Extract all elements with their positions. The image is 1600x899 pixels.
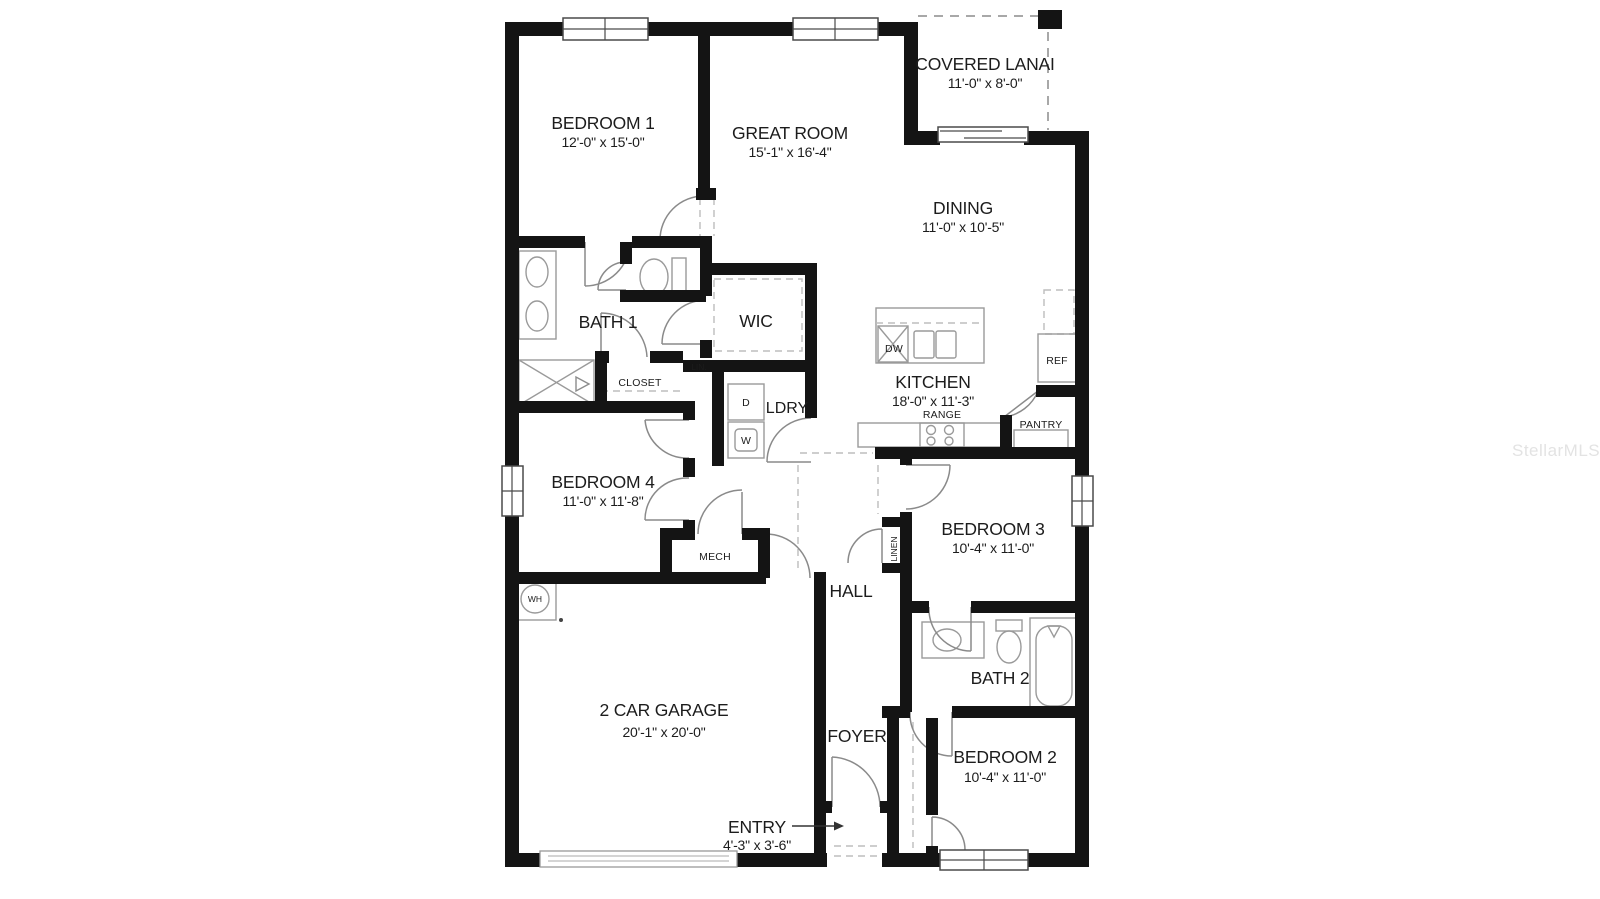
shower-valve-icon xyxy=(576,377,589,391)
floor-plan-image: BEDROOM 1 12'-0" x 15'-0" GREAT ROOM 15'… xyxy=(0,0,1600,899)
toilet2-bowl xyxy=(997,631,1021,663)
room-label-ldry: LDRY xyxy=(766,400,809,417)
wic-door xyxy=(662,300,706,344)
bath2-vanity xyxy=(922,622,984,658)
window-bedroom1 xyxy=(563,18,648,40)
toilet1-bowl xyxy=(640,259,668,295)
room-dims-great-room: 15'-1" x 16'-4" xyxy=(748,144,831,160)
linen-door xyxy=(848,529,882,563)
room-label-great-room: GREAT ROOM xyxy=(732,123,848,143)
room-label-bedroom2: BEDROOM 2 xyxy=(953,747,1056,767)
lanai-corner-post xyxy=(1038,10,1062,29)
toilet2-tank xyxy=(996,620,1022,631)
room-dims-entry: 4'-3" x 3'-6" xyxy=(723,837,791,853)
laundry-door xyxy=(767,418,811,462)
pantry-shelf xyxy=(1014,430,1068,448)
room-label-bedroom3: BEDROOM 3 xyxy=(941,519,1044,539)
room-label-pantry: PANTRY xyxy=(1020,419,1063,431)
room-label-lin: LIN. xyxy=(691,362,707,372)
bedroom1-door xyxy=(660,196,704,240)
window-great-room xyxy=(793,18,878,40)
window-bedroom4 xyxy=(502,466,523,516)
room-label-bedroom4: BEDROOM 4 xyxy=(551,472,655,492)
hall-ceiling-break xyxy=(798,453,878,570)
room-label-kitchen: KITCHEN xyxy=(895,372,970,392)
burner xyxy=(927,437,935,445)
burner xyxy=(945,426,954,435)
burner xyxy=(945,437,953,445)
watermark: StellarMLS xyxy=(1512,441,1600,460)
range-box xyxy=(920,423,964,447)
pantry-door xyxy=(1004,391,1038,417)
label-range: RANGE xyxy=(923,409,961,421)
room-dims-dining: 11'-0" x 10'-5" xyxy=(922,219,1004,235)
floor-plan-canvas: BEDROOM 1 12'-0" x 15'-0" GREAT ROOM 15'… xyxy=(0,0,1600,899)
burner xyxy=(927,426,936,435)
island-sink-2 xyxy=(936,331,956,358)
room-label-dining: DINING xyxy=(933,198,993,218)
bath1-vanity xyxy=(519,251,556,339)
room-label-closet: CLOSET xyxy=(618,377,662,389)
room-label-bedroom1: BEDROOM 1 xyxy=(551,113,654,133)
bath1-sink-2 xyxy=(526,301,548,331)
bedroom3-door xyxy=(906,465,950,509)
room-dims-bedroom2: 10'-4" x 11'-0" xyxy=(964,769,1046,785)
label-refrigerator: REF xyxy=(1046,355,1068,367)
bath2-fixtures xyxy=(922,618,1078,712)
room-label-entry: ENTRY xyxy=(728,817,787,837)
lanai-sliding-door xyxy=(938,127,1028,142)
label-dishwasher: DW xyxy=(885,343,903,355)
front-entry-door xyxy=(832,757,880,807)
room-dims-bedroom1: 12'-0" x 15'-0" xyxy=(561,134,644,150)
room-label-bath1: BATH 1 xyxy=(579,312,638,332)
room-dims-bedroom4: 11'-0" x 11'-8" xyxy=(562,493,643,509)
bedroom4-door-1 xyxy=(645,420,689,458)
room-dims-garage: 20'-1" x 20'-0" xyxy=(622,724,705,740)
room-label-hall: HALL xyxy=(830,581,873,601)
bedroom1-opening xyxy=(700,198,714,236)
mech-door xyxy=(698,490,742,534)
wall-end-cap xyxy=(696,188,716,200)
label-dryer: D xyxy=(742,397,750,409)
bedroom2-closet-door xyxy=(932,817,965,850)
room-label-garage: 2 CAR GARAGE xyxy=(600,700,729,720)
room-dims-bedroom3: 10'-4" x 11'-0" xyxy=(952,540,1034,556)
room-label-mech: MECH xyxy=(699,551,731,563)
room-dims-kitchen: 18'-0" x 11'-3" xyxy=(892,393,974,409)
room-label-linen: LINEN xyxy=(889,536,899,561)
island-sink-1 xyxy=(914,331,934,358)
room-label-bath2: BATH 2 xyxy=(971,668,1030,688)
tub-faucet-icon xyxy=(1048,626,1060,637)
window-bedroom2 xyxy=(940,850,1028,870)
room-dims-covered-lanai: 11'-0" x 8'-0" xyxy=(948,75,1023,91)
room-label-foyer: FOYER xyxy=(827,726,886,746)
bath1-sink-1 xyxy=(526,257,548,287)
label-washer: W xyxy=(741,435,751,447)
label-water-heater: WH xyxy=(528,594,542,604)
window-bedroom3 xyxy=(1072,476,1093,526)
bath2-sink xyxy=(933,629,961,651)
room-label-covered-lanai: COVERED LANAI xyxy=(915,54,1054,74)
garage-entry-door xyxy=(766,534,810,578)
wh-drain-dot xyxy=(559,618,563,622)
entry-porch-edge xyxy=(834,846,877,856)
arrowhead-icon xyxy=(834,822,844,831)
kitchen-upper-cabinet xyxy=(1044,290,1074,334)
room-label-wic: WIC xyxy=(739,311,772,331)
garage-overhead-door xyxy=(540,851,737,867)
